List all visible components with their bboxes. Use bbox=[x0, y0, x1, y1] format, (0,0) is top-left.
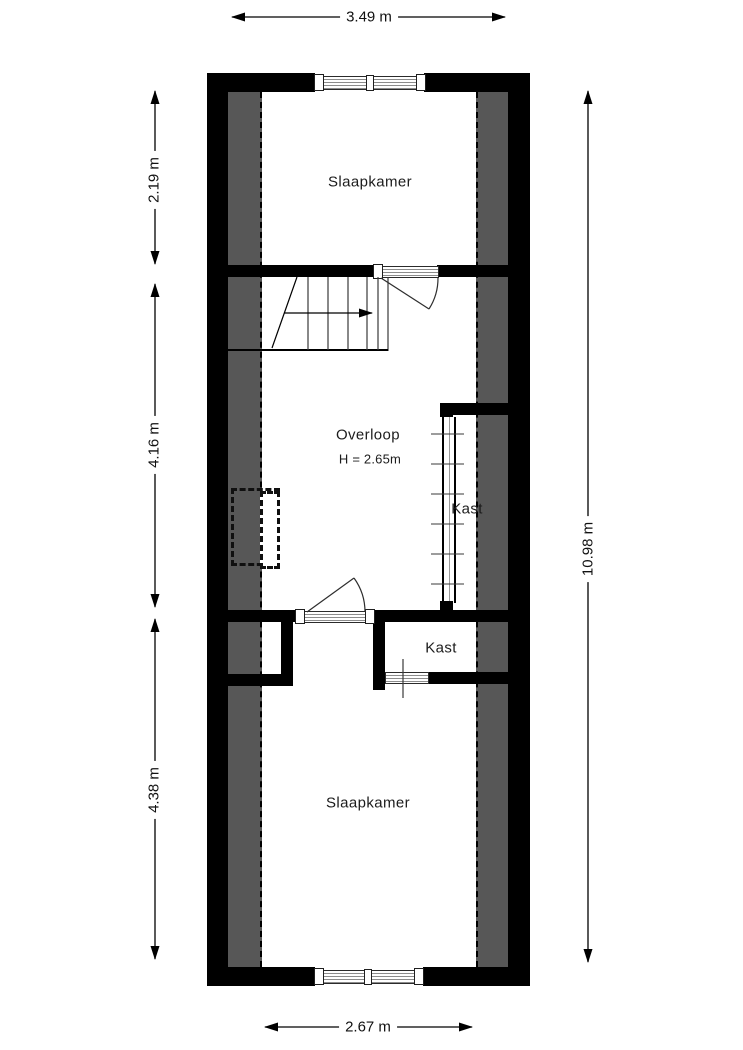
door-middle-threshold bbox=[302, 611, 367, 623]
closet-room-wall-bottom bbox=[427, 672, 530, 684]
window-bottom-mullion bbox=[364, 969, 372, 985]
window-bottom-post-left bbox=[314, 968, 324, 985]
window-top-post-left bbox=[314, 74, 324, 91]
closet-strip-top-wall bbox=[440, 403, 530, 415]
closet-room-wall-left bbox=[373, 617, 385, 690]
alcove-wall-bottom bbox=[210, 674, 293, 686]
closet-room-sliding-door bbox=[385, 672, 429, 684]
door-top-leaf-panel bbox=[381, 266, 439, 278]
floorplan-canvas: Slaapkamer Overloop H = 2.65m Kast Kast … bbox=[0, 0, 743, 1050]
door-top-swing bbox=[381, 278, 438, 309]
interior-wall-stair-right bbox=[437, 265, 530, 277]
room-label-closet-built-in: Kast bbox=[451, 501, 483, 518]
exterior-wall-right bbox=[508, 73, 530, 986]
exterior-wall-bottom-right-segment bbox=[423, 967, 530, 986]
dimension-label-right: 10.98 m bbox=[580, 516, 597, 582]
door-middle-frame-post-left bbox=[295, 609, 305, 624]
room-label-landing-height: H = 2.65m bbox=[339, 452, 401, 467]
room-label-bedroom-bottom: Slaapkamer bbox=[326, 795, 410, 812]
room-label-landing: Overloop bbox=[336, 427, 400, 444]
interior-wall-stair-left bbox=[210, 265, 373, 277]
window-top-mullion bbox=[366, 75, 374, 91]
dimension-label-left-lower: 4.38 m bbox=[146, 761, 163, 819]
closet-strip-post-top bbox=[440, 404, 453, 417]
dimension-label-left-upper: 2.19 m bbox=[146, 151, 163, 209]
linework-overlay bbox=[0, 0, 743, 1050]
dimension-label-bottom: 2.67 m bbox=[339, 1019, 397, 1036]
door-middle-frame-post-right bbox=[365, 609, 375, 624]
door-top-frame-post bbox=[373, 264, 383, 279]
headroom-dashed-line-right bbox=[476, 92, 478, 967]
door-middle-swing bbox=[307, 578, 365, 612]
dimension-label-left-middle: 4.16 m bbox=[146, 416, 163, 474]
exterior-wall-top-left-segment bbox=[207, 73, 315, 92]
dashed-dormer-window bbox=[260, 491, 280, 569]
window-top-post-right bbox=[416, 74, 426, 91]
window-bottom-post-right bbox=[414, 968, 424, 985]
exterior-wall-top-right-segment bbox=[424, 73, 530, 92]
sloped-ceiling-zone-right bbox=[476, 92, 508, 967]
room-label-bedroom-top: Slaapkamer bbox=[328, 174, 412, 191]
exterior-wall-left bbox=[207, 73, 228, 986]
dimension-label-top: 3.49 m bbox=[340, 9, 398, 26]
exterior-wall-bottom-left-segment bbox=[207, 967, 315, 986]
room-label-closet-room: Kast bbox=[425, 640, 457, 657]
closet-strip-post-bottom bbox=[440, 601, 453, 614]
